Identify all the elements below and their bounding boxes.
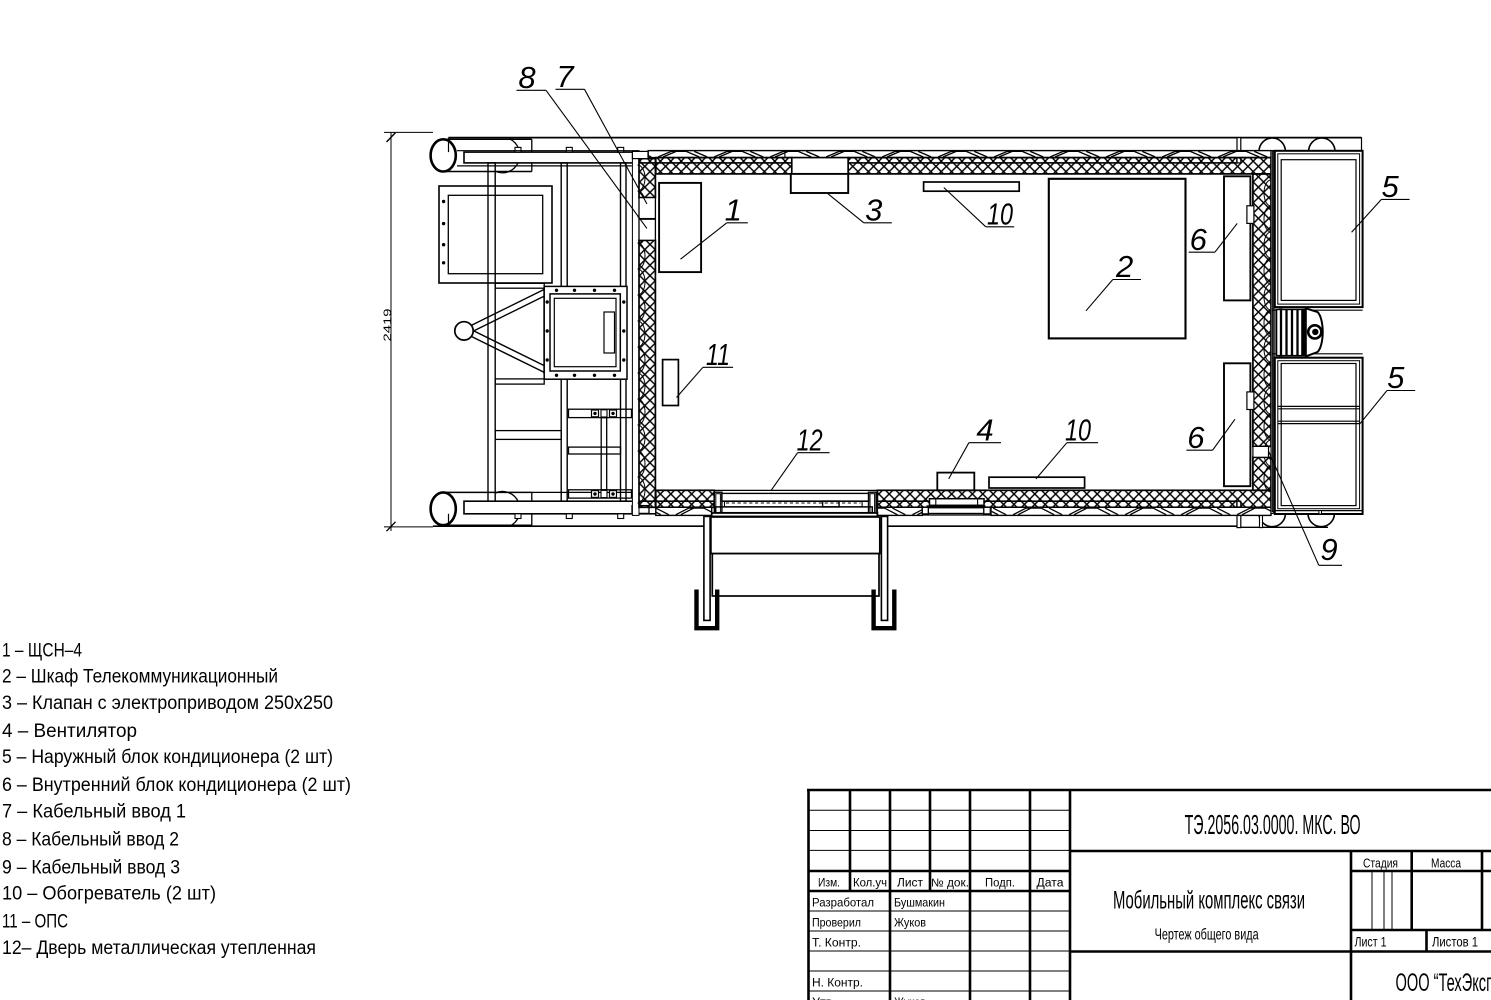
svg-text:Мобильный комплекс связи: Мобильный комплекс связи [1113,887,1305,915]
svg-text:Стадия: Стадия [1363,856,1398,871]
svg-text:Лист: Лист [897,878,924,890]
svg-text:Н. Контр.: Н. Контр. [812,976,863,990]
svg-text:№ док.: № док. [931,878,969,890]
svg-text:2419: 2419 [382,309,394,342]
svg-text:1: 1 [725,193,742,228]
svg-text:Жуков: Жуков [894,916,926,930]
svg-text:Дата: Дата [1037,878,1065,890]
svg-text:9: 9 [1320,532,1337,567]
svg-text:4: 4 [976,412,993,447]
svg-text:6: 6 [1187,420,1205,455]
svg-text:Лист 1: Лист 1 [1355,935,1387,950]
svg-text:5: 5 [1381,169,1399,204]
svg-text:Жуков: Жуков [894,995,926,1000]
svg-text:11: 11 [706,337,730,372]
svg-text:2: 2 [1115,249,1133,284]
svg-text:ТЭ.2056.03.0000. МКС. ВО: ТЭ.2056.03.0000. МКС. ВО [1185,809,1361,840]
svg-text:10: 10 [987,197,1013,232]
svg-text:Кол.уч: Кол.уч [853,878,887,890]
svg-text:10: 10 [1065,412,1091,447]
svg-text:6 – Внутренний блок кондиционе: 6 – Внутренний блок кондиционера (2 шт) [2,775,351,796]
svg-text:5 – Наружный блок кондиционера: 5 – Наружный блок кондиционера (2 шт) [2,747,333,768]
svg-text:11 – ОПС: 11 – ОПС [2,912,68,933]
svg-text:ООО “ТехЭксперт”: ООО “ТехЭксперт” [1396,969,1491,997]
svg-text:Разработал: Разработал [812,896,874,910]
svg-text:Подп.: Подп. [985,878,1015,890]
svg-text:7 – Кабельный ввод 1: 7 – Кабельный ввод 1 [2,801,186,822]
svg-text:Бушмакин: Бушмакин [894,896,945,910]
svg-text:3 – Клапан с электроприводом 2: 3 – Клапан с электроприводом 250х250 [2,693,333,714]
svg-text:5: 5 [1387,360,1405,395]
svg-text:10 – Обогреватель (2 шт): 10 – Обогреватель (2 шт) [2,884,216,905]
svg-text:8: 8 [518,60,536,95]
svg-text:Изм.: Изм. [818,878,840,890]
svg-text:Т. Контр.: Т. Контр. [812,936,861,950]
svg-text:Проверил: Проверил [812,916,861,930]
svg-text:Чертеж общего вида: Чертеж общего вида [1155,927,1259,944]
svg-text:Листов 1: Листов 1 [1432,935,1478,950]
svg-text:12: 12 [797,422,823,457]
svg-text:1 – ЩСН–4: 1 – ЩСН–4 [2,641,82,662]
svg-text:Утв.: Утв. [812,995,836,1000]
svg-text:7: 7 [556,59,575,94]
svg-text:8 – Кабельный ввод 2: 8 – Кабельный ввод 2 [2,829,179,850]
svg-text:2 – Шкаф Телекоммуникационный: 2 – Шкаф Телекоммуникационный [2,667,278,688]
svg-text:6: 6 [1190,222,1208,257]
svg-text:9 – Кабельный ввод 3: 9 – Кабельный ввод 3 [2,858,180,879]
svg-text:4 – Вентилятор: 4 – Вентилятор [2,721,137,742]
svg-text:12– Дверь металлическая утепле: 12– Дверь металлическая утепленная [2,938,316,959]
svg-text:3: 3 [865,193,882,228]
svg-text:Масса: Масса [1431,856,1462,871]
